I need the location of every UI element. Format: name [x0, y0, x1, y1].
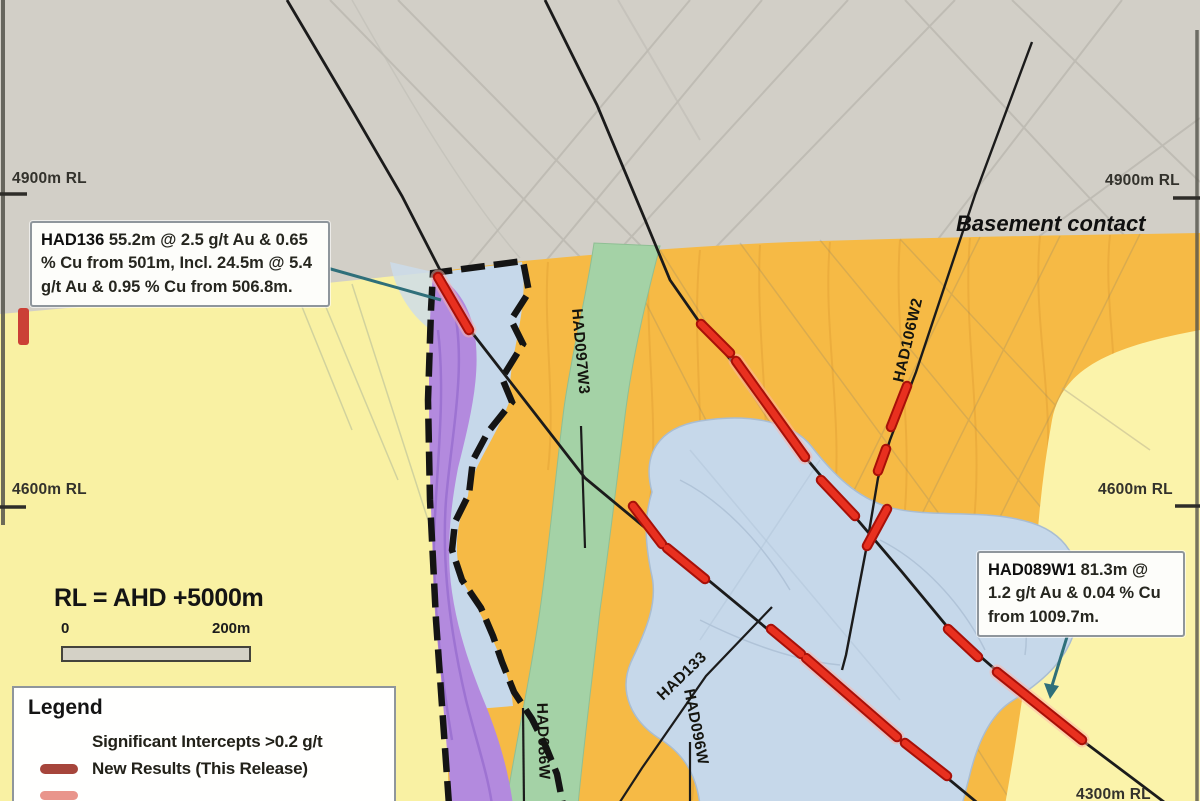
legend-label-significant-intercepts: Significant Intercepts >0.2 g/t [92, 732, 322, 752]
rl-datum-note: RL = AHD +5000m [54, 584, 264, 613]
scalebar-start-label: 0 [61, 620, 69, 637]
had086w-leader-line [523, 708, 524, 801]
scalebar [61, 646, 251, 662]
rl-label-mid-left: 4600m RL [12, 481, 87, 499]
callout-had089w1: HAD089W1 81.3m @ 1.2 g/t Au & 0.04 % Cu … [977, 551, 1185, 637]
new-results-dash-icon [40, 764, 78, 774]
legend-empty-swatch [40, 737, 78, 747]
callout-had136: HAD136 55.2m @ 2.5 g/t Au & 0.65 % Cu fr… [30, 221, 330, 307]
drillhole-label-had086w: HAD086W [533, 703, 553, 780]
rl-label-top-left: 4900m RL [12, 170, 87, 188]
legend: Legend Significant Intercepts >0.2 g/t N… [12, 686, 396, 801]
callout-had089w1-id: HAD089W1 [988, 561, 1076, 579]
rl-label-mid-right: 4600m RL [1098, 481, 1173, 499]
scalebar-end-label: 200m [212, 620, 250, 637]
rl-label-top-right: 4900m RL [1105, 172, 1180, 190]
basement-contact-label: Basement contact [956, 211, 1146, 237]
legend-row-new-results: New Results (This Release) [24, 755, 384, 782]
rl-label-bottom-right: 4300m RL [1076, 786, 1151, 801]
legend-row-cutoff [24, 782, 384, 801]
callout-had136-id: HAD136 [41, 231, 104, 249]
geology-drawing: HAD097W3 HAD106W2 HAD133 HAD086W HAD096W [0, 0, 1200, 801]
legend-row-significant-intercepts: Significant Intercepts >0.2 g/t [24, 728, 384, 755]
legend-title: Legend [28, 696, 384, 720]
cutoff-dash-icon [40, 791, 78, 800]
legend-label-new-results: New Results (This Release) [92, 759, 308, 779]
intercept-edge-strip [18, 308, 29, 345]
cross-section-figure: HAD097W3 HAD106W2 HAD133 HAD086W HAD096W… [0, 0, 1200, 801]
